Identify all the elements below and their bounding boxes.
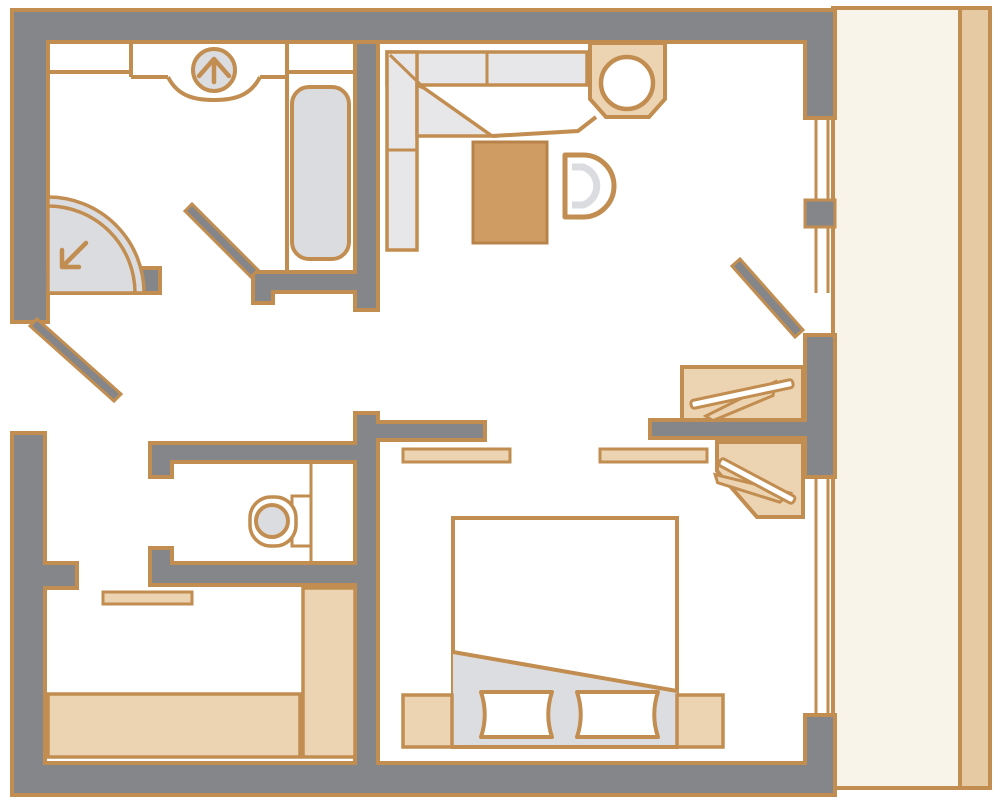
balcony-door-leaf [732,259,803,337]
balcony [833,8,990,788]
wardrobes [682,367,803,518]
corner-bench-corner [417,85,492,136]
sink-bowl-icon [601,57,653,109]
wc [250,462,311,563]
bedroom [403,518,723,747]
wall-shelf [103,592,192,604]
balcony-railing [960,8,990,788]
bathroom [48,42,355,293]
window-icon [816,227,828,293]
toilet-bowl [256,505,288,537]
floor-plan [0,0,1000,804]
pillow-icon [481,692,552,737]
window-pier-wall [805,200,835,227]
nightstand-left [403,695,452,747]
pillow-icon [577,692,658,737]
sliding-door-panel [600,449,707,462]
dining-table [473,142,547,243]
bench-seat-edge [492,117,596,136]
floor-plan-drawing [0,0,1000,804]
dining-nook [387,43,665,250]
corner-shower-icon [48,197,144,293]
entrance-door-leaf [30,319,121,401]
nightstand-right [677,695,723,747]
bathtub-icon [292,87,349,259]
lower-room [48,588,355,757]
sliding-door-panel [403,449,510,462]
sliding-panels [403,449,707,462]
window-icon [816,118,828,200]
window-icon [816,477,828,715]
tall-cabinet [303,588,355,757]
bathroom-door-leaf [185,204,258,277]
sideboard [48,694,300,757]
